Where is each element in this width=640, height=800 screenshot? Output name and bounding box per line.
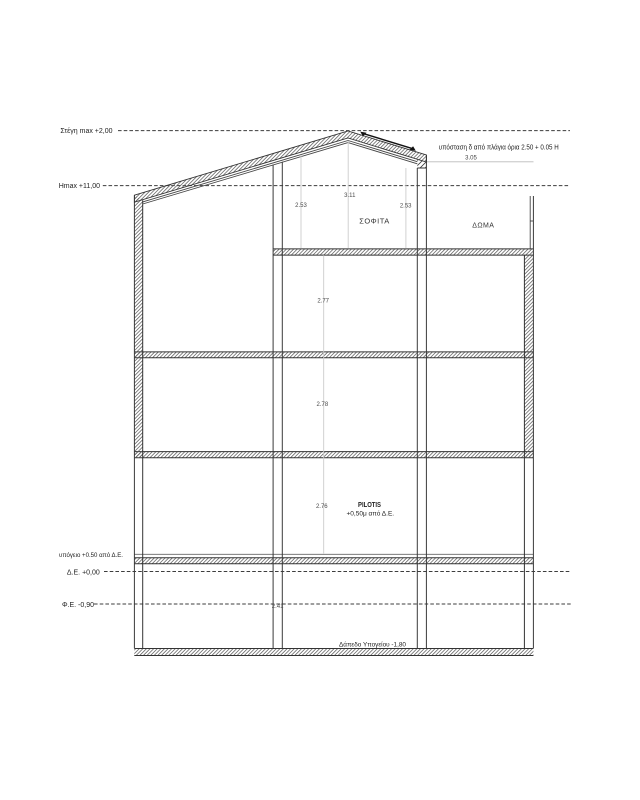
svg-text:Δάπεδο Υπογείου -1,80: Δάπεδο Υπογείου -1,80	[339, 641, 406, 649]
svg-text:Δ.Ε. +0,00: Δ.Ε. +0,00	[67, 569, 100, 576]
svg-text:Hmax +11,00: Hmax +11,00	[59, 183, 100, 190]
svg-text:ΣΟΦΙΤΑ: ΣΟΦΙΤΑ	[359, 216, 390, 225]
svg-text:2.77: 2.77	[317, 298, 329, 304]
svg-text:ΔΩΜΑ: ΔΩΜΑ	[472, 223, 494, 230]
svg-text:+0,50μ από Δ.Ε.: +0,50μ από Δ.Ε.	[347, 509, 395, 517]
svg-text:2.41: 2.41	[272, 604, 284, 610]
svg-text:υπόσταση δ από πλάγια όρια 2.5: υπόσταση δ από πλάγια όρια 2.50 + 0.05 H	[439, 144, 559, 152]
svg-text:2.53: 2.53	[295, 203, 307, 209]
svg-text:υπόγειο +0.50 από Δ.Ε.: υπόγειο +0.50 από Δ.Ε.	[59, 551, 123, 559]
svg-text:PILOTIS: PILOTIS	[358, 502, 381, 509]
svg-text:Στέγη max +2,00: Στέγη max +2,00	[60, 127, 112, 135]
svg-text:2.78: 2.78	[317, 402, 329, 408]
svg-text:Φ.Ε. -0,90: Φ.Ε. -0,90	[62, 602, 94, 609]
svg-text:3.05: 3.05	[465, 156, 477, 162]
svg-text:2.76: 2.76	[316, 504, 328, 510]
svg-text:2.53: 2.53	[400, 203, 412, 209]
svg-text:3.11: 3.11	[344, 193, 356, 199]
